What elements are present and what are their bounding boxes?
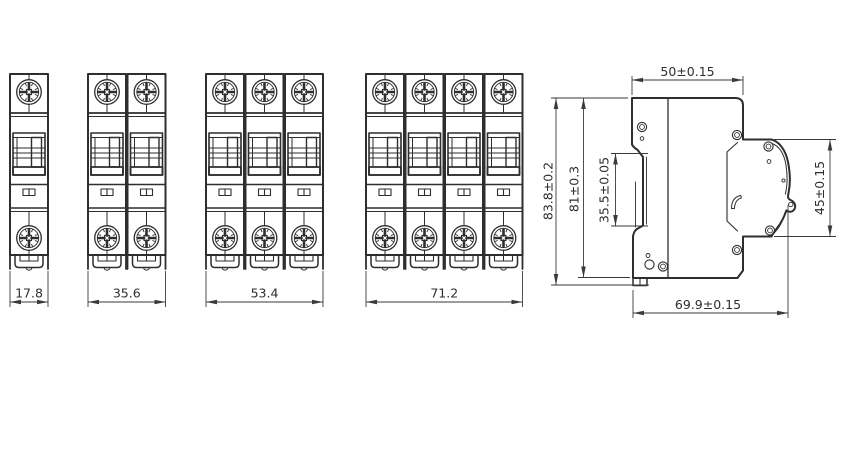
pole-module (485, 74, 523, 270)
indicator-window (458, 189, 470, 196)
screw-terminal-icon (412, 226, 437, 251)
screw-terminal-icon (292, 80, 317, 105)
toggle-handle (91, 133, 123, 175)
screw-terminal-icon (17, 80, 42, 105)
screw-terminal-icon (452, 226, 477, 251)
dimension-label: 53.4 (251, 286, 279, 301)
indicator-window (219, 189, 231, 196)
front-view-3-pole (206, 74, 323, 270)
front-channel (727, 143, 738, 232)
toggle-handle (209, 133, 241, 175)
front-view-4-pole (366, 74, 523, 270)
din-clip-tab (251, 255, 279, 270)
din-clip-tab (490, 255, 518, 270)
dimension-width-2pole: 35.6 (88, 271, 166, 307)
screw-terminal-icon (213, 80, 238, 105)
screw-terminal-icon (491, 80, 516, 105)
din-clip-tab (290, 255, 318, 270)
screw-terminal-icon (17, 226, 42, 251)
din-clip-tab (450, 255, 478, 270)
indicator-window (498, 189, 510, 196)
pole-module (445, 74, 483, 270)
din-clip-tab (93, 255, 121, 270)
din-clip-tab (15, 255, 43, 270)
pole-module (128, 74, 166, 270)
screw-terminal-icon (134, 226, 159, 251)
pole-module (206, 74, 244, 270)
screw-terminal-icon (373, 226, 398, 251)
dimension-din-recess-height: 35.5±0.05 (597, 154, 649, 227)
side-view: 50±0.15 69.9±0.15 45±0.15 83.8±0.2 81±0.… (541, 64, 837, 318)
toggle-handle (448, 133, 480, 175)
dimension-label: 71.2 (430, 286, 458, 301)
screw-terminal-icon (213, 226, 238, 251)
screw-terminal-icon (95, 226, 120, 251)
dimension-label: 45±0.15 (812, 161, 827, 215)
indicator-window (298, 189, 310, 196)
dimension-width-3pole: 53.4 (206, 271, 323, 307)
dimension-width-1pole: 17.8 (10, 271, 48, 307)
dimension-top-width: 50±0.15 (632, 64, 743, 95)
pole-module (88, 74, 126, 270)
toggle-handle (13, 133, 45, 175)
indicator-window (259, 189, 271, 196)
screw-terminal-icon (412, 80, 437, 105)
toggle-handle (288, 133, 320, 175)
dimension-width-4pole: 71.2 (366, 271, 523, 307)
din-clip-tab (133, 255, 161, 270)
screw-terminal-icon (491, 226, 516, 251)
indicator-window (379, 189, 391, 196)
din-clip-tab (371, 255, 399, 270)
circuit-breaker-dimension-drawing: 17.8 35.6 53.4 71.2 (0, 0, 842, 451)
screw-terminal-icon (252, 80, 277, 105)
indicator-window (101, 189, 113, 196)
front-view-1-pole (10, 74, 48, 270)
toggle-handle (131, 133, 163, 175)
toggle-handle (409, 133, 441, 175)
dimension-label: 50±0.15 (660, 64, 714, 79)
dimension-label: 35.5±0.05 (597, 157, 612, 223)
side-body-outline (632, 98, 795, 278)
pole-module (285, 74, 323, 270)
pole-module (366, 74, 404, 270)
dimension-label: 83.8±0.2 (541, 162, 556, 220)
dimension-label: 17.8 (15, 286, 43, 301)
indicator-window (141, 189, 153, 196)
toggle-side-profile (732, 196, 742, 209)
toggle-handle (488, 133, 520, 175)
screw-terminal-icon (95, 80, 120, 105)
indicator-window (419, 189, 431, 196)
front-views: 17.8 35.6 53.4 71.2 (10, 74, 523, 307)
pole-module (406, 74, 444, 270)
screw-terminal-icon (134, 80, 159, 105)
side-rivets (637, 122, 793, 271)
indicator-window (23, 189, 35, 196)
front-view-2-pole (88, 74, 166, 270)
din-clip-tab (211, 255, 239, 270)
screw-terminal-icon (292, 226, 317, 251)
dimension-label: 35.6 (113, 286, 141, 301)
pole-module (246, 74, 284, 270)
dimension-label: 69.9±0.15 (675, 297, 741, 312)
toggle-handle (369, 133, 401, 175)
din-clip-tab (411, 255, 439, 270)
screw-terminal-icon (452, 80, 477, 105)
pole-module (10, 74, 48, 270)
toggle-handle (249, 133, 281, 175)
drawing-canvas: 17.8 35.6 53.4 71.2 (0, 0, 842, 451)
screw-terminal-icon (373, 80, 398, 105)
dimension-depth: 69.9±0.15 (633, 205, 788, 318)
dimension-label: 81±0.3 (567, 166, 582, 212)
screw-terminal-icon (252, 226, 277, 251)
